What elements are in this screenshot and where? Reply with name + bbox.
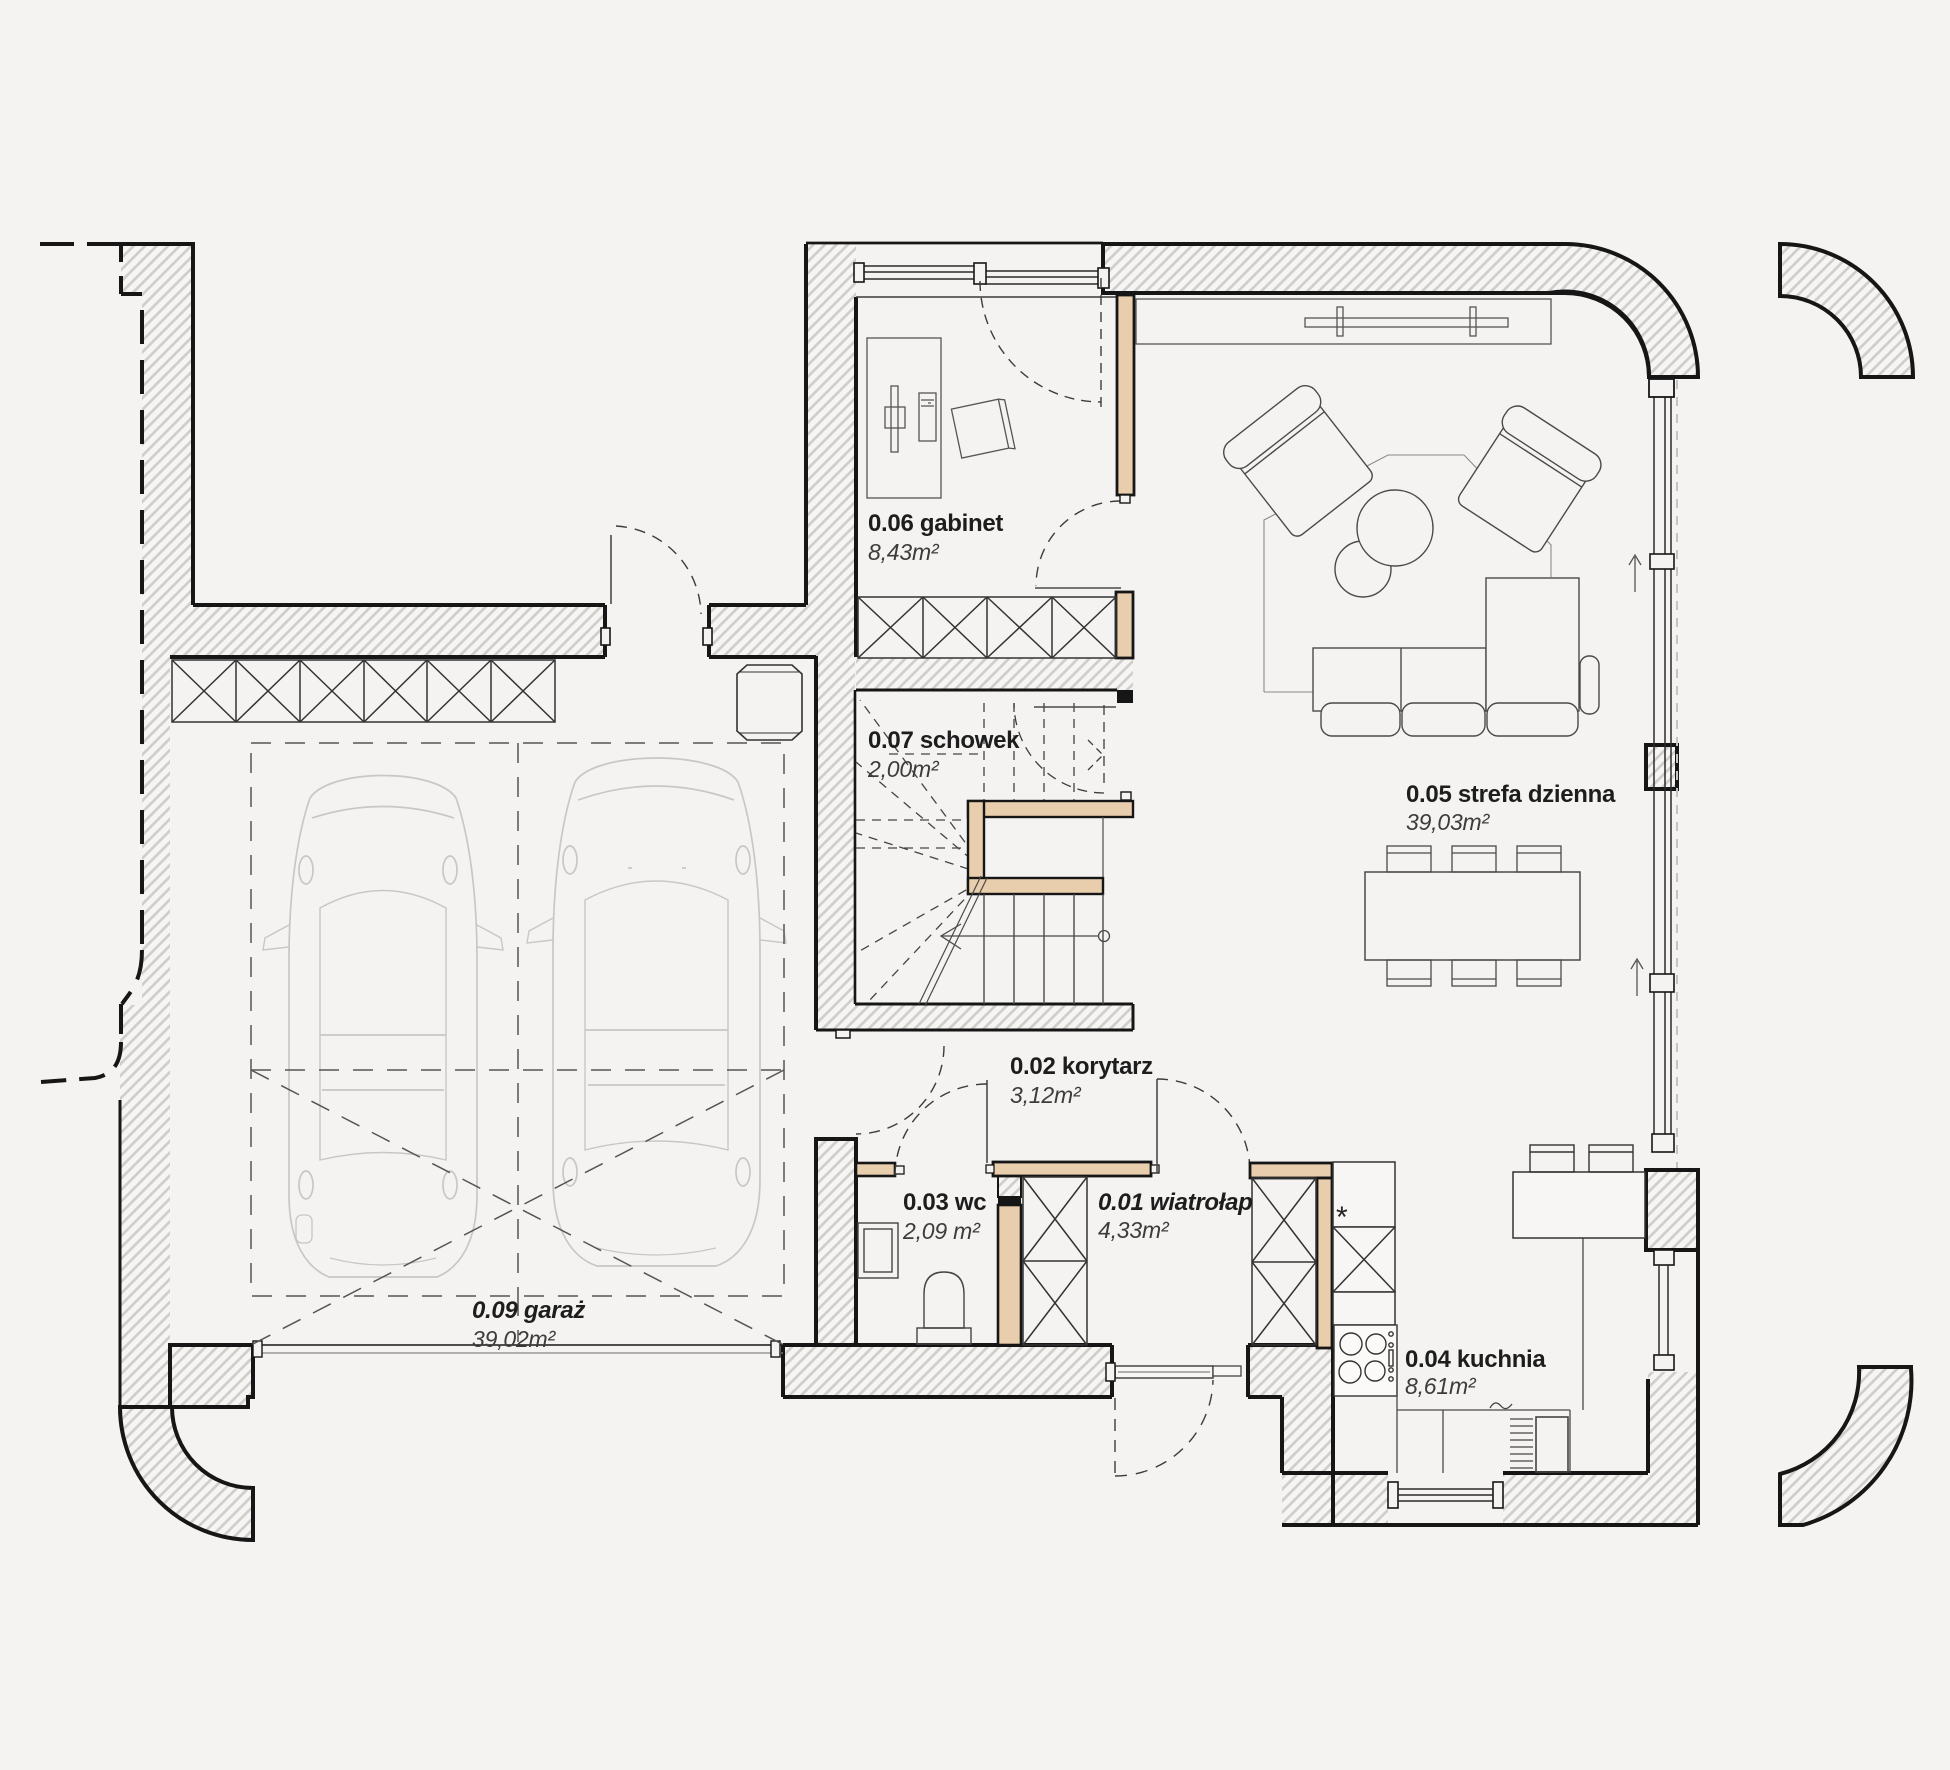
svg-text:0.05 strefa dzienna: 0.05 strefa dzienna bbox=[1406, 781, 1616, 808]
svg-text:2,00m²: 2,00m² bbox=[867, 756, 940, 782]
svg-text:8,61m²: 8,61m² bbox=[1405, 1373, 1477, 1399]
svg-text:39,02m²: 39,02m² bbox=[472, 1326, 557, 1352]
svg-text:0.01 wiatrołap: 0.01 wiatrołap bbox=[1098, 1189, 1253, 1216]
svg-text:0.03 wc: 0.03 wc bbox=[903, 1189, 986, 1216]
svg-text:8,43m²: 8,43m² bbox=[868, 539, 940, 565]
svg-text:2,09 m²: 2,09 m² bbox=[902, 1218, 981, 1244]
svg-text:4,33m²: 4,33m² bbox=[1098, 1217, 1170, 1243]
svg-text:0.02 korytarz: 0.02 korytarz bbox=[1010, 1053, 1153, 1080]
svg-text:0.09 garaż: 0.09 garaż bbox=[472, 1297, 585, 1324]
svg-text:0.07 schowek: 0.07 schowek bbox=[868, 727, 1020, 754]
svg-text:3,12m²: 3,12m² bbox=[1010, 1082, 1082, 1108]
svg-text:0.06 gabinet: 0.06 gabinet bbox=[868, 510, 1003, 537]
svg-text:39,03m²: 39,03m² bbox=[1406, 809, 1491, 835]
svg-text:0.04 kuchnia: 0.04 kuchnia bbox=[1405, 1346, 1546, 1373]
svg-text:*: * bbox=[1336, 1201, 1348, 1234]
